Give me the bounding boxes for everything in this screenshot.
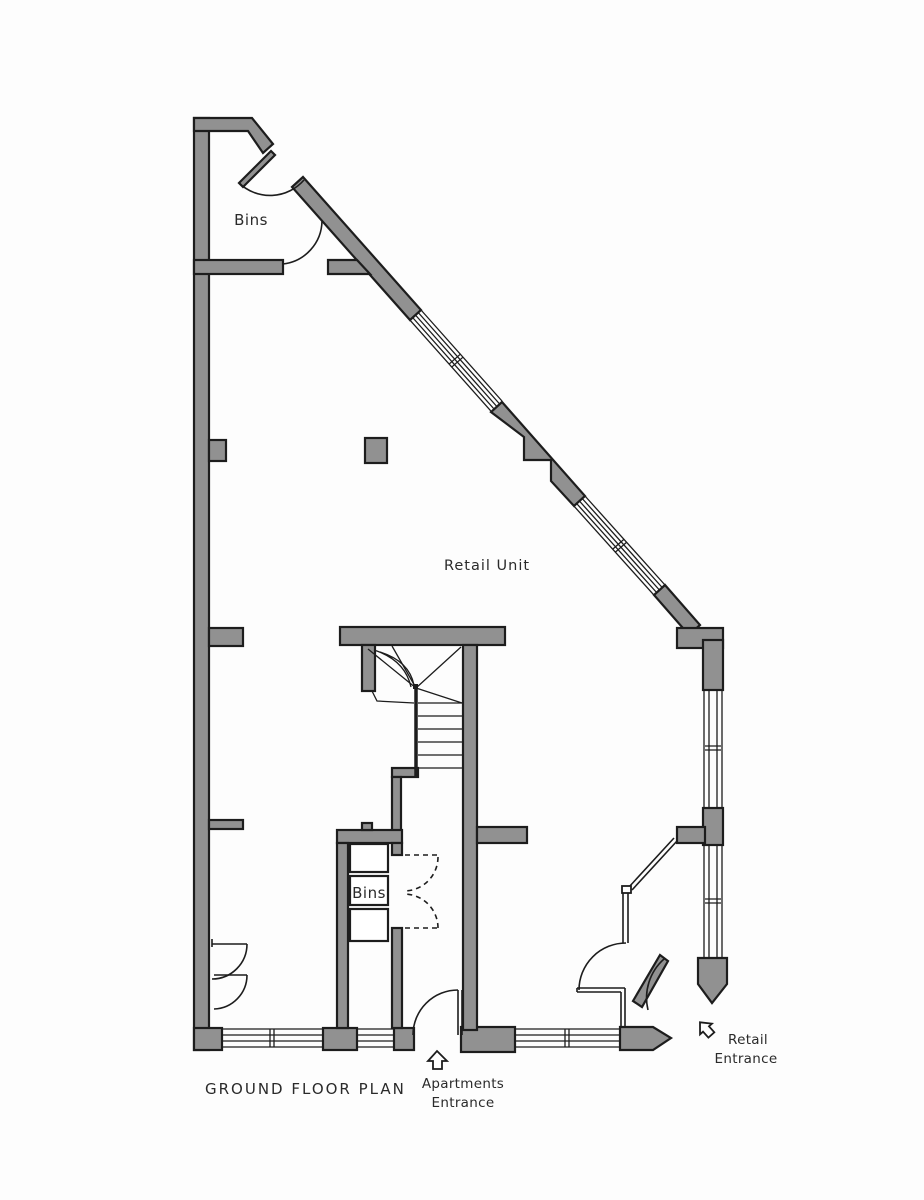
mullion-tick	[705, 746, 721, 750]
bay-stub	[677, 827, 705, 843]
glazing-lines	[222, 1029, 323, 1047]
retail-entrance-label-line1: Retail	[728, 1032, 768, 1048]
bins-top-wall	[337, 830, 402, 843]
bins-right-wall-upper	[392, 843, 402, 855]
corridor-right-wall	[463, 645, 477, 1030]
stair-top-wall	[340, 627, 505, 645]
structural-column	[365, 438, 387, 463]
bins-right-wall-lower	[392, 928, 402, 1028]
cupboard-door-arc-1	[212, 944, 247, 979]
cupboard-shelf-line-1	[212, 939, 247, 947]
entrance-door-arc-1	[579, 943, 626, 990]
facade-window-1	[410, 310, 502, 411]
door-swing-arc	[413, 990, 458, 1035]
bin-container-1	[350, 844, 388, 872]
plan-title: GROUND FLOOR PLAN	[205, 1080, 406, 1098]
glazing-lines	[357, 1029, 394, 1047]
bottom-window-3	[515, 1029, 620, 1047]
entrance-door-leaf	[633, 955, 668, 1007]
bottom-corner-block	[194, 1028, 222, 1050]
bins-lower-label: Bins	[352, 884, 386, 902]
glazing-lines	[704, 690, 722, 808]
left-wall-stub-c	[209, 820, 243, 829]
winder-chamfer-edge	[372, 691, 414, 703]
retail-unit-label: Retail Unit	[444, 558, 530, 574]
bay-vertical-window	[623, 893, 628, 943]
bins-store-lower	[337, 823, 438, 1028]
bin-container-3	[350, 909, 388, 941]
glazing-lines	[410, 310, 502, 411]
bay-junction-post	[622, 886, 631, 893]
mullion-tick	[565, 1029, 569, 1047]
retail-entrance-icon-group	[694, 1017, 717, 1040]
floor-plan-drawing: Bins Retail Unit Bins GROUND FLOOR PLAN …	[0, 0, 924, 1200]
bins-top-label: Bins	[234, 211, 268, 229]
bins-room-top	[194, 151, 370, 274]
cupboard-door-arc-2	[214, 975, 247, 1009]
bins-top-door-swing-arc	[283, 221, 322, 264]
labels: Bins Retail Unit Bins GROUND FLOOR PLAN …	[205, 211, 777, 1111]
bins-top-stub	[362, 823, 372, 830]
bottom-arrow-pier	[620, 1027, 671, 1050]
top-door-leaf	[239, 151, 275, 187]
shopfront-corner-glazing	[577, 988, 625, 1028]
floor-plan-page: Bins Retail Unit Bins GROUND FLOOR PLAN …	[0, 0, 924, 1200]
entrance-bay	[577, 838, 677, 1028]
retail-entrance-label-line2: Entrance	[715, 1051, 778, 1067]
up-arrow-icon	[428, 1051, 447, 1069]
right-arrow-pier	[698, 958, 727, 1003]
mullion-tick	[705, 899, 721, 903]
outer-walls	[194, 118, 727, 1052]
left-cupboard-doors	[212, 939, 247, 1009]
stair-l-wall-horizontal	[392, 768, 418, 777]
glazing-lines	[515, 1029, 620, 1047]
right-window-1	[704, 690, 722, 808]
bay-diagonal-window	[629, 838, 677, 890]
bins-double-door-dashed	[396, 855, 438, 928]
apartments-entrance-icon-group	[428, 1051, 447, 1069]
right-window-2	[704, 845, 722, 958]
retail-stub-wall	[477, 827, 527, 843]
bins-left-wall	[337, 843, 348, 1028]
left-wall	[194, 118, 209, 1050]
stair-treads	[418, 703, 462, 768]
up-left-arrow-icon	[694, 1017, 717, 1040]
stair-newel	[413, 684, 418, 689]
stair-left-leg	[362, 645, 375, 691]
bottom-window-1	[222, 1029, 323, 1047]
bottom-pier-1	[323, 1028, 357, 1050]
right-wall-top	[703, 640, 723, 690]
left-wall-stub-a	[209, 440, 226, 461]
bottom-pier-2	[394, 1028, 414, 1050]
facade-pier-notched	[491, 402, 585, 506]
facade-window-2	[574, 496, 665, 595]
apartments-entrance-door	[413, 990, 462, 1035]
bottom-window-2	[357, 1029, 394, 1047]
left-wall-stub-b	[209, 628, 243, 646]
glazing-lines	[574, 496, 665, 595]
glazing-lines	[704, 845, 722, 958]
stair-l-wall-vertical	[392, 777, 401, 835]
apartments-entrance-label-line1: Apartments	[422, 1076, 504, 1092]
bins-top-bottom-wall-left	[194, 260, 283, 274]
mullion-tick	[270, 1029, 274, 1047]
apartments-entrance-label-line2: Entrance	[432, 1095, 495, 1111]
